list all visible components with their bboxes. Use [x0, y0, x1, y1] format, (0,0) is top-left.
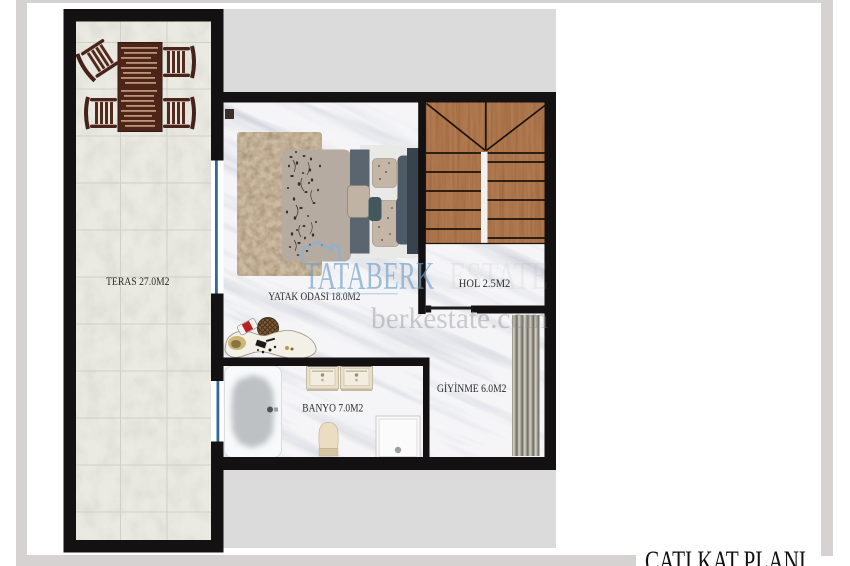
- svg-text:ÇATI KAT PLANI: ÇATI KAT PLANI: [645, 547, 806, 566]
- svg-text:ESTATE: ESTATE: [449, 255, 548, 298]
- svg-text:BANYO 7.0M2: BANYO 7.0M2: [302, 403, 363, 415]
- svg-text:GİYİNME 6.0M2: GİYİNME 6.0M2: [437, 381, 507, 395]
- svg-text:TERAS 27.0M2: TERAS 27.0M2: [106, 276, 170, 288]
- svg-text:TATABERK: TATABERK: [304, 255, 435, 298]
- svg-text:berkestate.com: berkestate.com: [371, 302, 548, 335]
